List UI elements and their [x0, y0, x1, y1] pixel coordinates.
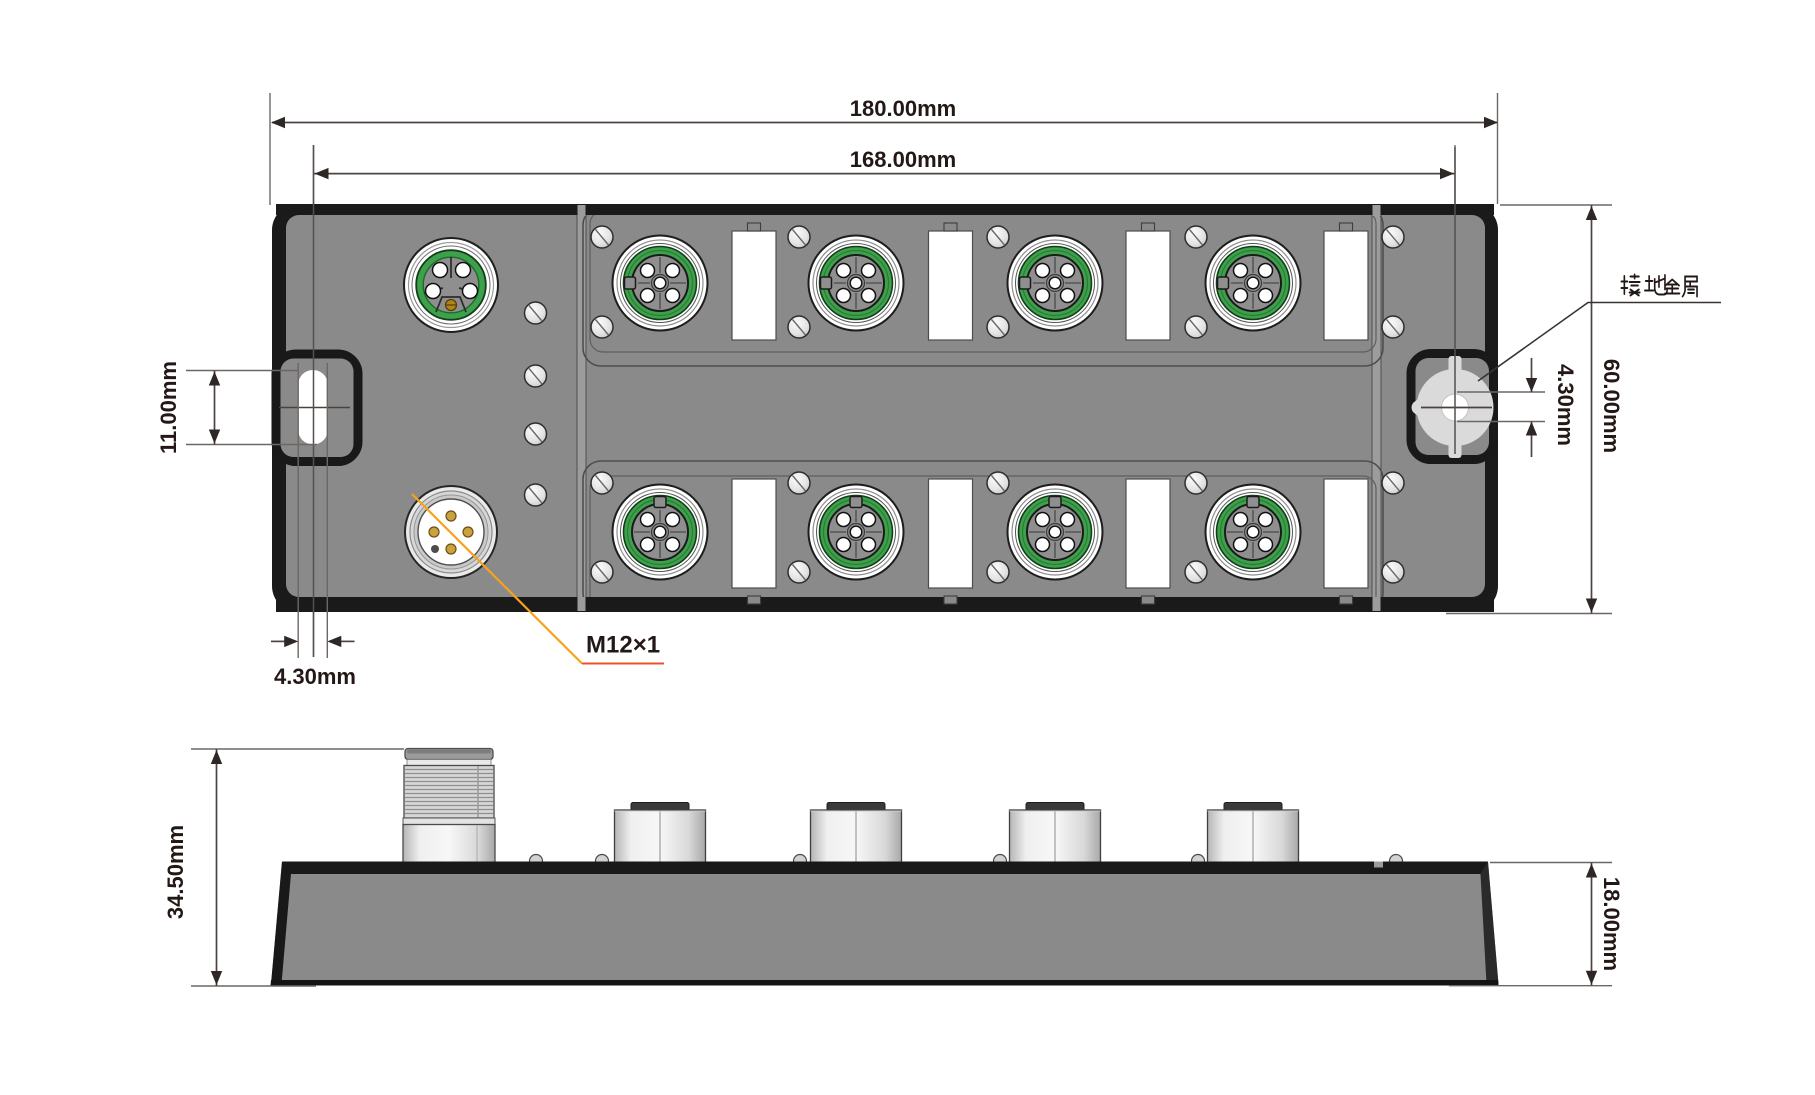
svg-text:M12×1: M12×1 [586, 632, 660, 659]
svg-text:4.30mm: 4.30mm [274, 664, 356, 689]
svg-text:34.50mm: 34.50mm [163, 825, 188, 919]
svg-text:11.00mm: 11.00mm [156, 361, 181, 454]
svg-text:180.00mm: 180.00mm [850, 96, 956, 121]
svg-text:4.30mm: 4.30mm [1553, 364, 1578, 446]
svg-text:18.00mm: 18.00mm [1599, 877, 1624, 971]
svg-text:168.00mm: 168.00mm [850, 147, 956, 172]
svg-text:60.00mm: 60.00mm [1599, 359, 1624, 453]
